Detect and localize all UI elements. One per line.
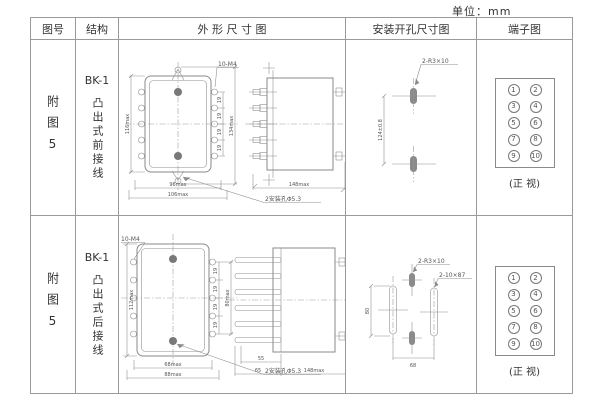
label-10-M4: 10-M4 [121, 236, 140, 243]
dim-116max: 116max [125, 114, 131, 134]
terminal-pin-10: 10 [530, 150, 542, 162]
front-wiring-outline-diagram: 116max 19 19 19 19 134max 10-M4 96max 10… [119, 40, 346, 216]
rear-wiring-mounting-diagram: 80 68 2-R3×10 2-10×87 [346, 216, 477, 392]
front-view-caption: (正 视) [509, 175, 540, 190]
terminal-pin-2: 2 [530, 84, 542, 96]
front-view-caption: (正 视) [509, 363, 540, 378]
dim-pitch-19: 19 [217, 97, 223, 103]
dim-88max: 88max [164, 372, 181, 378]
header-terminal: 端子图 [477, 18, 572, 40]
terminal-pin-4: 4 [530, 101, 542, 113]
row2-terminal-diagram: 1 2 3 4 5 6 7 8 9 10 (正 视) [477, 216, 572, 393]
dim-55: 55 [258, 356, 264, 362]
dim-68max: 68max [164, 362, 181, 368]
header-outline-label: 外 形 尺 寸 图 [198, 21, 267, 37]
dim-148max: 148max [289, 182, 309, 188]
dim-pitch-19: 19 [213, 286, 219, 292]
terminal-pin-1: 1 [508, 272, 520, 284]
row1-fig-no: 附图5 [31, 40, 76, 216]
spec-table: 图号 结构 外 形 尺 寸 图 安装开孔尺寸图 端子图 附图5 BK-1 凸出式… [30, 17, 573, 394]
front-view: 10-M4 112max 19 19 19 19 80max 68max 88m… [121, 234, 321, 380]
label-small-slot: 2-R3×10 [418, 258, 445, 265]
terminal-pin-6: 6 [530, 305, 542, 317]
rear-wiring-outline-diagram: 10-M4 112max 19 19 19 19 80max 68max 88m… [119, 216, 346, 392]
terminal-pin-5: 5 [508, 305, 520, 317]
dim-pitch-19: 19 [213, 322, 219, 328]
front-wiring-mounting-diagram: 124±0.8 2-R3×10 [346, 40, 477, 216]
terminal-pin-3: 3 [508, 101, 520, 113]
dim-80max: 80max [225, 289, 231, 306]
terminal-pin-7: 7 [508, 322, 520, 334]
dim-148max: 148max [304, 368, 324, 374]
row1-fig-no-label: 附图5 [45, 95, 62, 160]
terminal-pin-9: 9 [508, 338, 520, 350]
note-mounting-holes: 2安装孔Φ5.3 [265, 195, 301, 203]
row2-outline-drawing: 10-M4 112max 19 19 19 19 80max 68max 88m… [119, 216, 346, 393]
terminal-box: 1 2 3 4 5 6 7 8 9 10 [495, 78, 555, 168]
terminal-pin-9: 9 [508, 150, 520, 162]
row1-terminal-diagram: 1 2 3 4 5 6 7 8 9 10 (正 视) [477, 40, 572, 216]
terminal-pin-6: 6 [530, 117, 542, 129]
dim-65: 65 [255, 368, 261, 374]
header-fig-no: 图号 [31, 18, 76, 40]
header-outline: 外 形 尺 寸 图 [119, 18, 346, 40]
dim-pitch-19: 19 [217, 145, 223, 151]
header-fig-no-label: 图号 [42, 21, 64, 37]
terminal-box: 1 2 3 4 5 6 7 8 9 10 [495, 266, 555, 356]
row2-model-label: BK-1 [85, 251, 110, 264]
row2-mounting-drawing: 80 68 2-R3×10 2-10×87 [346, 216, 477, 393]
terminal-pin-8: 8 [530, 322, 542, 334]
row2-fig-no-label: 附图5 [45, 272, 62, 337]
dim-112max: 112max [129, 290, 135, 310]
dim-124: 124±0.8 [378, 119, 384, 141]
terminal-pin-7: 7 [508, 134, 520, 146]
terminal-pin-4: 4 [530, 289, 542, 301]
row2-wiring-label: 凸出式后接线 [89, 274, 105, 358]
terminal-pin-10: 10 [530, 338, 542, 350]
terminal-pin-3: 3 [508, 289, 520, 301]
dim-pitch-19: 19 [213, 304, 219, 310]
dim-80: 80 [365, 308, 371, 314]
row1-outline-drawing: 116max 19 19 19 19 134max 10-M4 96max 10… [119, 40, 346, 216]
dim-pitch-19: 19 [217, 129, 223, 135]
label-10-M4: 10-M4 [218, 61, 237, 68]
header-mounting-label: 安装开孔尺寸图 [373, 21, 450, 37]
dim-68: 68 [410, 363, 416, 369]
header-structure-label: 结构 [86, 21, 108, 37]
dim-96max: 96max [169, 182, 186, 188]
dim-106max: 106max [168, 192, 188, 198]
dim-134max: 134max [229, 116, 235, 136]
header-terminal-label: 端子图 [508, 21, 541, 37]
terminal-pin-5: 5 [508, 117, 520, 129]
row1-structure: BK-1 凸出式前接线 [76, 40, 119, 216]
terminal-pin-1: 1 [508, 84, 520, 96]
side-view: 55 65 148max [229, 248, 346, 376]
terminal-pin-8: 8 [530, 134, 542, 146]
label-slot: 2-R3×10 [422, 58, 449, 65]
dim-pitch-19: 19 [213, 268, 219, 274]
header-mounting: 安装开孔尺寸图 [346, 18, 477, 40]
row1-model-label: BK-1 [85, 74, 110, 87]
terminal-pin-2: 2 [530, 272, 542, 284]
side-view: 148max [245, 62, 345, 192]
dim-pitch-19: 19 [217, 113, 223, 119]
label-large-slot: 2-10×87 [439, 272, 465, 279]
row1-mounting-drawing: 124±0.8 2-R3×10 [346, 40, 477, 216]
row2-structure: BK-1 凸出式后接线 [76, 216, 119, 393]
row2-fig-no: 附图5 [31, 216, 76, 393]
header-structure: 结构 [76, 18, 119, 40]
row1-wiring-label: 凸出式前接线 [89, 97, 105, 181]
